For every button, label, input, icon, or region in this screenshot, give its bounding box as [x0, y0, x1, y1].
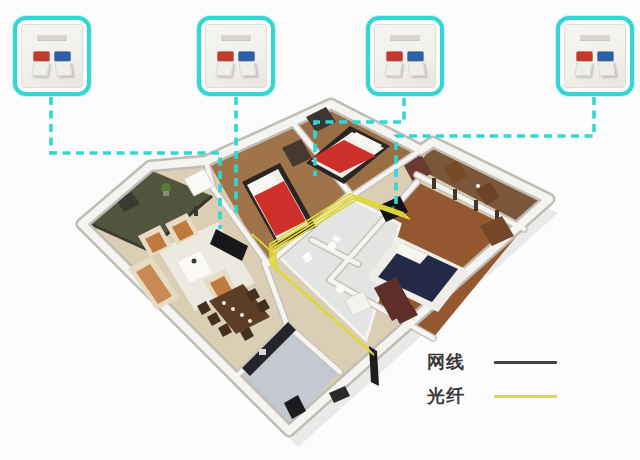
port-shutter [598, 62, 616, 77]
port-shutter [215, 62, 233, 77]
legend-item-network-cable: 网线 [427, 350, 557, 374]
port-shutter [574, 62, 592, 77]
legend-item-fiber: 光纤 [427, 384, 557, 408]
legend: 网线 光纤 [427, 350, 557, 418]
rj45-port-red-icon [218, 51, 234, 61]
rj45-port-blue-icon [239, 51, 255, 61]
outlet-brand-label [221, 34, 251, 41]
network-cable-line-icon [494, 361, 557, 364]
rj45-port-blue-icon [408, 51, 424, 61]
toilet [336, 285, 344, 293]
rj45-port-red-icon [577, 51, 593, 61]
toilet [328, 242, 336, 250]
port-shutter [408, 62, 426, 77]
port-shutter [384, 62, 402, 77]
outlet-brand-label [580, 34, 610, 41]
fiber-line-icon [494, 395, 557, 398]
outlet-faceplate [21, 24, 83, 88]
wall-outlet-3 [366, 16, 444, 96]
legend-label: 网线 [427, 350, 479, 374]
port-shutter [31, 62, 49, 77]
outlet-faceplate [374, 24, 436, 88]
rj45-port-red-icon [34, 51, 50, 61]
wall-outlet-2 [197, 16, 275, 96]
outlet-brand-label [390, 34, 420, 41]
port-shutter [239, 62, 257, 77]
outlet-faceplate [564, 24, 626, 88]
rj45-port-red-icon [387, 51, 403, 61]
outlet-brand-label [37, 34, 67, 41]
legend-label: 光纤 [427, 384, 479, 408]
outlet-faceplate [205, 24, 267, 88]
rj45-port-blue-icon [598, 51, 614, 61]
infographic-canvas: 网线 光纤 [0, 0, 640, 460]
wall-outlet-1 [13, 16, 91, 96]
wall-outlet-4 [556, 16, 634, 96]
rj45-port-blue-icon [55, 51, 71, 61]
port-shutter [55, 62, 73, 77]
